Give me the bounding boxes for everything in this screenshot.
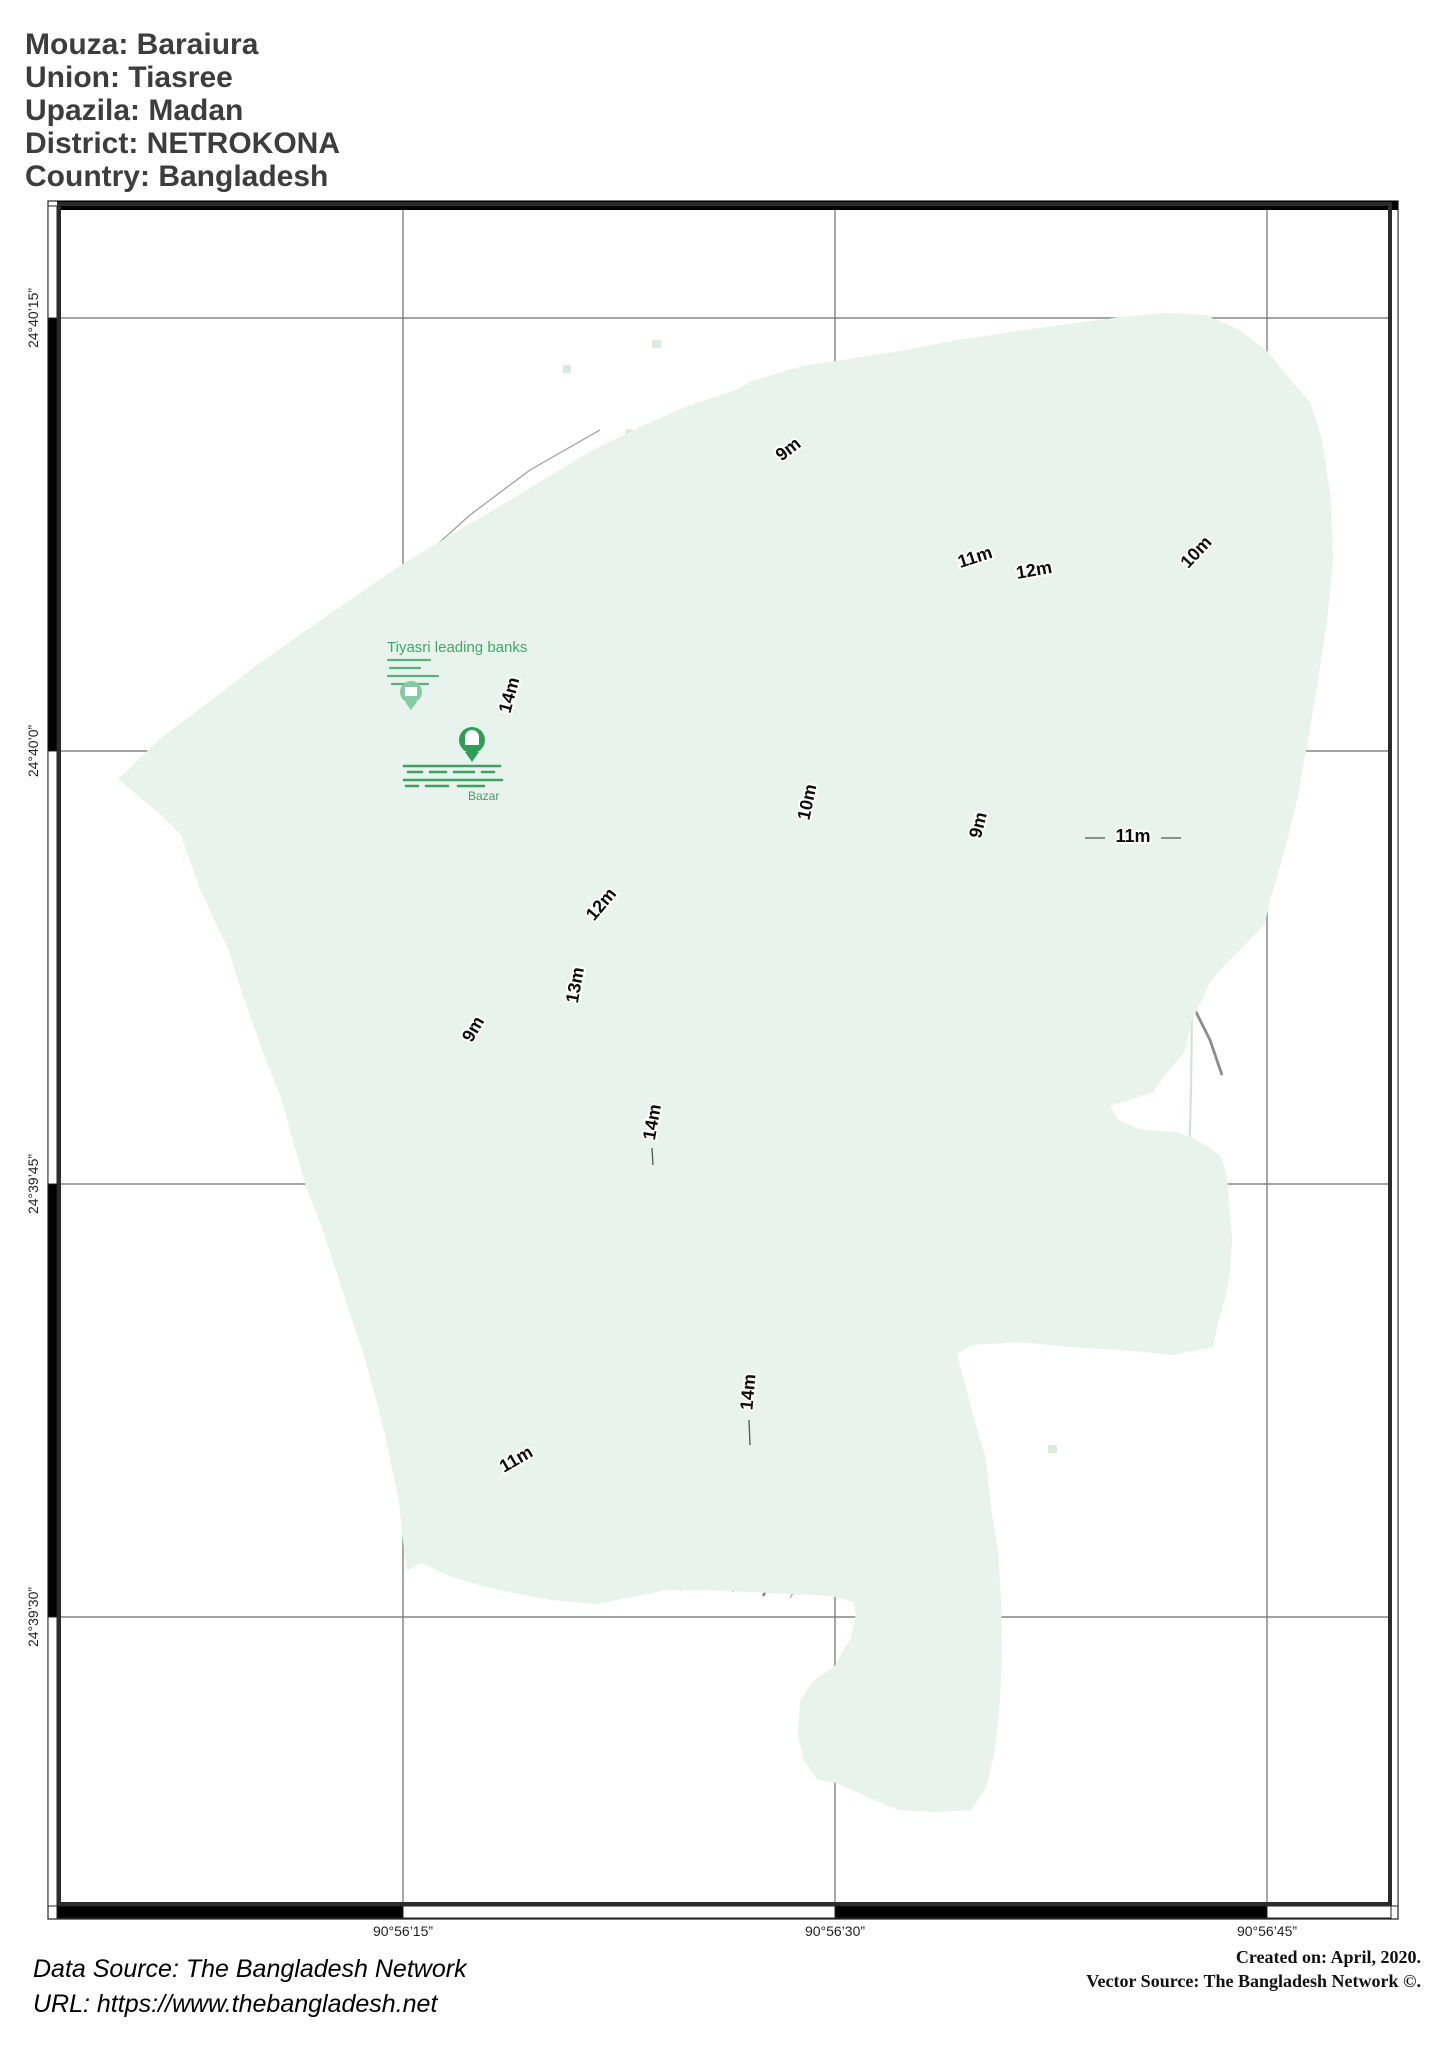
svg-text:Tiyasri leading banks: Tiyasri leading banks xyxy=(387,639,527,656)
svg-text:11m: 11m xyxy=(1115,826,1150,846)
svg-text:Bazar: Bazar xyxy=(468,789,499,803)
svg-text:24°40’0”: 24°40’0” xyxy=(25,725,41,778)
svg-text:Vector Source: The Bangladesh: Vector Source: The Bangladesh Network ©. xyxy=(1086,1971,1421,1991)
svg-text:24°40’15”: 24°40’15” xyxy=(25,288,41,348)
svg-text:Upazila: Madan: Upazila: Madan xyxy=(25,94,243,127)
svg-text:90°56’15”: 90°56’15” xyxy=(373,1923,433,1939)
svg-text:90°56’30”: 90°56’30” xyxy=(805,1923,865,1939)
svg-text:Created on: April, 2020.: Created on: April, 2020. xyxy=(1236,1947,1421,1967)
svg-text:Country: Bangladesh: Country: Bangladesh xyxy=(25,160,328,193)
svg-text:24°39’45”: 24°39’45” xyxy=(25,1154,41,1214)
svg-text:District: NETROKONA: District: NETROKONA xyxy=(25,127,340,160)
svg-text:24°39’30”: 24°39’30” xyxy=(25,1587,41,1647)
svg-text:90°56’45”: 90°56’45” xyxy=(1237,1923,1297,1939)
svg-text:Data Source: The Bangladesh Ne: Data Source: The Bangladesh Network xyxy=(33,1955,468,1983)
svg-text:14m: 14m xyxy=(736,1373,759,1411)
svg-text:Union: Tiasree: Union: Tiasree xyxy=(25,61,233,94)
svg-text:URL: https://www.thebangladesh: URL: https://www.thebangladesh.net xyxy=(33,1990,438,2018)
svg-text:Mouza: Baraiura: Mouza: Baraiura xyxy=(25,28,259,61)
